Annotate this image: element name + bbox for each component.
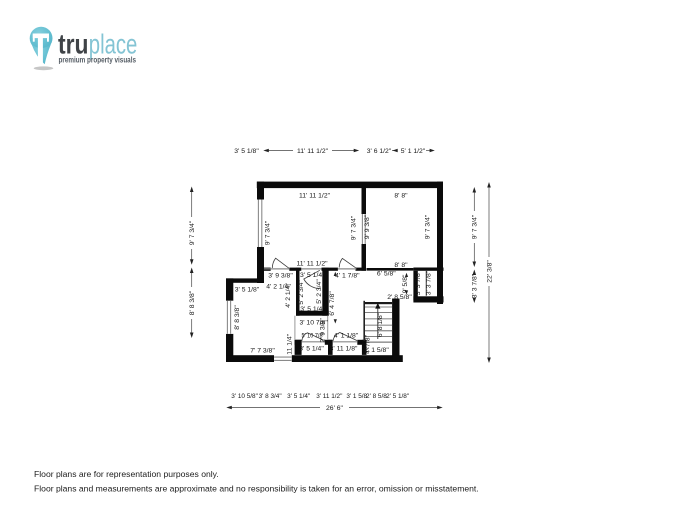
svg-text:6' 4 7/8": 6' 4 7/8" [329, 291, 336, 316]
svg-text:9' 7 3/4": 9' 7 3/4" [265, 220, 272, 245]
svg-text:Floor plans are for representa: Floor plans are for representation purpo… [34, 469, 219, 479]
svg-text:5' 2 3/4": 5' 2 3/4" [298, 280, 305, 305]
svg-text:11 1/4": 11 1/4" [287, 333, 294, 354]
svg-text:2' 9 3/8": 2' 9 3/8" [320, 318, 327, 343]
svg-text:3' 3 7/8": 3' 3 7/8" [426, 270, 433, 295]
svg-text:3' 10 5/8": 3' 10 5/8" [231, 393, 258, 400]
svg-text:4' 7/8": 4' 7/8" [365, 334, 372, 353]
svg-text:2' 8 5/8: 2' 8 5/8 [366, 393, 387, 400]
svg-text:2' 8 5/8": 2' 8 5/8" [387, 294, 412, 301]
svg-text:3' 3 7/8": 3' 3 7/8" [415, 270, 422, 295]
svg-text:8' 8 3/8": 8' 8 3/8" [234, 305, 241, 330]
svg-text:3' 5 1/8": 3' 5 1/8" [234, 148, 259, 155]
svg-text:3' 11 1/8": 3' 11 1/8" [330, 346, 358, 353]
svg-text:3' 3 7/8": 3' 3 7/8" [472, 273, 479, 298]
svg-text:11' 11 1/2": 11' 11 1/2" [296, 261, 328, 268]
svg-text:11' 11 1/2": 11' 11 1/2" [299, 193, 331, 200]
svg-text:9' 7 3/4": 9' 7 3/4" [424, 214, 431, 239]
svg-text:3' 5 1/4": 3' 5 1/4" [300, 272, 325, 279]
svg-text:8' 8 3/8": 8' 8 3/8" [189, 290, 196, 315]
svg-text:8' 8": 8' 8" [394, 262, 408, 269]
svg-text:9' 7 3/4": 9' 7 3/4" [351, 215, 358, 240]
svg-text:26' 6": 26' 6" [326, 405, 344, 412]
svg-text:8' 8": 8' 8" [394, 193, 408, 200]
svg-text:3' 5 1/4": 3' 5 1/4" [287, 393, 310, 400]
svg-text:3' 8 3/4": 3' 8 3/4" [259, 393, 282, 400]
svg-text:3' 5 1/8": 3' 5 1/8" [235, 287, 260, 294]
svg-text:3' 9 3/8": 3' 9 3/8" [268, 273, 293, 280]
svg-text:9' 9 3/8": 9' 9 3/8" [364, 214, 371, 239]
svg-text:9' 7 3/4": 9' 7 3/4" [189, 220, 196, 245]
svg-text:3' 5 1/4": 3' 5 1/4" [300, 306, 325, 313]
svg-text:4' 1 7/8": 4' 1 7/8" [335, 273, 360, 280]
svg-text:5' 2 3/4": 5' 2 3/4" [316, 279, 323, 304]
svg-text:3' 6 1/2": 3' 6 1/2" [367, 148, 392, 155]
svg-text:2' 5 1/8": 2' 5 1/8" [386, 393, 409, 400]
svg-text:premium property visuals: premium property visuals [59, 56, 137, 65]
svg-text:3' 1 5/8: 3' 1 5/8 [346, 393, 367, 400]
svg-text:6' 5/8": 6' 5/8" [377, 271, 396, 278]
svg-text:22' 3/8": 22' 3/8" [486, 260, 493, 283]
svg-text:5' 1 1/2": 5' 1 1/2" [401, 148, 426, 155]
svg-text:9' 5/8": 9' 5/8" [402, 274, 409, 293]
svg-text:7' 7 3/8": 7' 7 3/8" [250, 348, 275, 355]
svg-text:Floor plans and measurements a: Floor plans and measurements are approxi… [34, 483, 479, 493]
svg-text:9' 7 3/4": 9' 7 3/4" [472, 214, 479, 239]
svg-text:4' 1 1/8": 4' 1 1/8" [334, 333, 359, 340]
svg-text:3' 11 1/2": 3' 11 1/2" [316, 393, 342, 400]
svg-text:11' 11 1/2": 11' 11 1/2" [297, 148, 329, 155]
svg-text:6' 8 1/8": 6' 8 1/8" [377, 312, 384, 337]
svg-text:3' 5 1/4": 3' 5 1/4" [299, 346, 324, 353]
svg-text:4' 2 1/4": 4' 2 1/4" [285, 283, 292, 308]
